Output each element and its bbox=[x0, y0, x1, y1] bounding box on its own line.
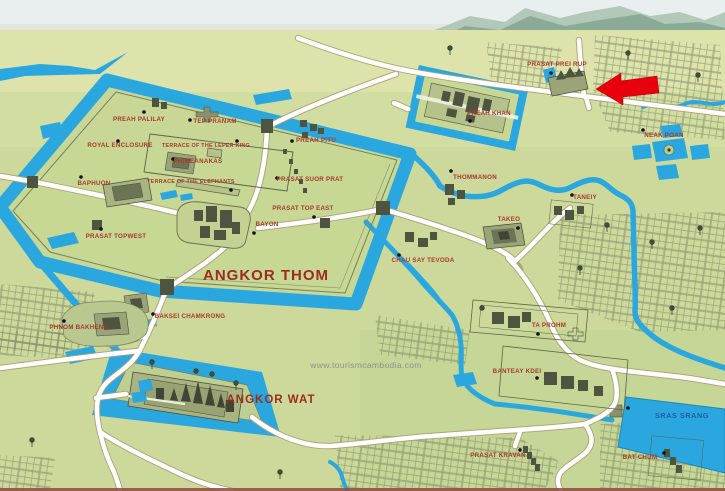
map-label-phnom-bakheng: PHNOM BAKHENG bbox=[49, 324, 108, 331]
map-label-preah-pitu: PREAH PITU bbox=[296, 137, 336, 144]
map-label-baphuon: BAPHUON bbox=[77, 180, 110, 187]
tep-pranam-marker-dot bbox=[188, 118, 192, 122]
map-label-neak-poan: NEAK POAN bbox=[644, 132, 684, 139]
preah-khan-marker-dot bbox=[468, 119, 472, 123]
map-label-tep-pranam: TEP PRANAM bbox=[193, 118, 236, 125]
ta-prohm-marker-dot bbox=[536, 332, 540, 336]
map-label-angkor-thom: ANGKOR THOM bbox=[203, 267, 329, 284]
map-label-preah-khan: PREAH KHAN bbox=[467, 110, 511, 117]
bat-chum-marker-dot bbox=[662, 451, 666, 455]
map-label-bat-chum: BAT CHUM bbox=[623, 454, 658, 461]
map-label-royal-enclosure: ROYAL ENCLOSURE bbox=[87, 142, 152, 149]
preah-palilay-marker-dot bbox=[142, 110, 146, 114]
thommanon-marker-dot bbox=[449, 169, 453, 173]
map-label-takeo: TAKEO bbox=[498, 216, 520, 223]
bayon-marker-dot bbox=[252, 231, 256, 235]
map-label-terrace-of-the-elephants: TERRACE OF THE ELEPHANTS bbox=[147, 179, 235, 185]
map-label-bayon: BAYON bbox=[255, 221, 278, 228]
map-label-phimeanakas: PHIMEANAKAS bbox=[174, 158, 223, 165]
map-label-taneiy: TANEIY bbox=[573, 194, 597, 201]
map-label-ta-prohm: TA PROHM bbox=[532, 322, 566, 329]
sras-srang-marker-dot bbox=[626, 406, 630, 410]
map-label-sras-srang: SRAS SRANG bbox=[655, 411, 709, 420]
prasat-top-east-marker-dot bbox=[312, 215, 316, 219]
map-label-watermark: www.tourismcambodia.com bbox=[309, 360, 422, 370]
takeo-marker-dot bbox=[516, 226, 520, 230]
map-label-thommanon: THOMMANON bbox=[453, 174, 497, 181]
baphuon-marker-dot bbox=[79, 175, 83, 179]
map-label-chau-say-tevoda: CHAU SAY TEVODA bbox=[392, 257, 455, 264]
banteay-kdei-marker-dot bbox=[535, 376, 539, 380]
map-label-prasat-topwest: PRASAT TOPWEST bbox=[86, 233, 147, 240]
angkor-tourist-map: PRASAT PREI RUPPREAH KHANNEAK POANPREAH … bbox=[0, 0, 725, 491]
preah-pitu-marker-dot bbox=[290, 139, 294, 143]
map-label-terrace-of-the-leper-king: TERRACE OF THE LEPER KING bbox=[162, 143, 250, 149]
map-label-baksei-chamkrong: BAKSEI CHAMKRONG bbox=[155, 313, 226, 320]
map-label-angkor-wat: ANGKOR WAT bbox=[226, 394, 315, 406]
map-canvas: PRASAT PREI RUPPREAH KHANNEAK POANPREAH … bbox=[0, 0, 725, 491]
map-label-banteay-kdei: BANTEAY KDEI bbox=[493, 368, 542, 375]
prasat-prei-rup-marker-dot bbox=[549, 71, 553, 75]
map-label-prasat-kravan: PRASAT KRAVAN bbox=[470, 452, 526, 459]
map-label-prasat-prei-rup: PRASAT PREI RUP bbox=[527, 61, 587, 68]
prasat-topwest-marker-dot bbox=[99, 227, 103, 231]
phnom-bakheng-marker-dot bbox=[62, 319, 66, 323]
map-label-preah-palilay: PREAH PALILAY bbox=[113, 116, 166, 123]
terrace-of-the-elephants-marker-dot bbox=[229, 188, 233, 192]
map-label-prasat-top-east: PRASAT TOP EAST bbox=[272, 205, 333, 212]
map-label-prasat-suor-prat: PRASAT SUOR PRAT bbox=[277, 176, 344, 183]
